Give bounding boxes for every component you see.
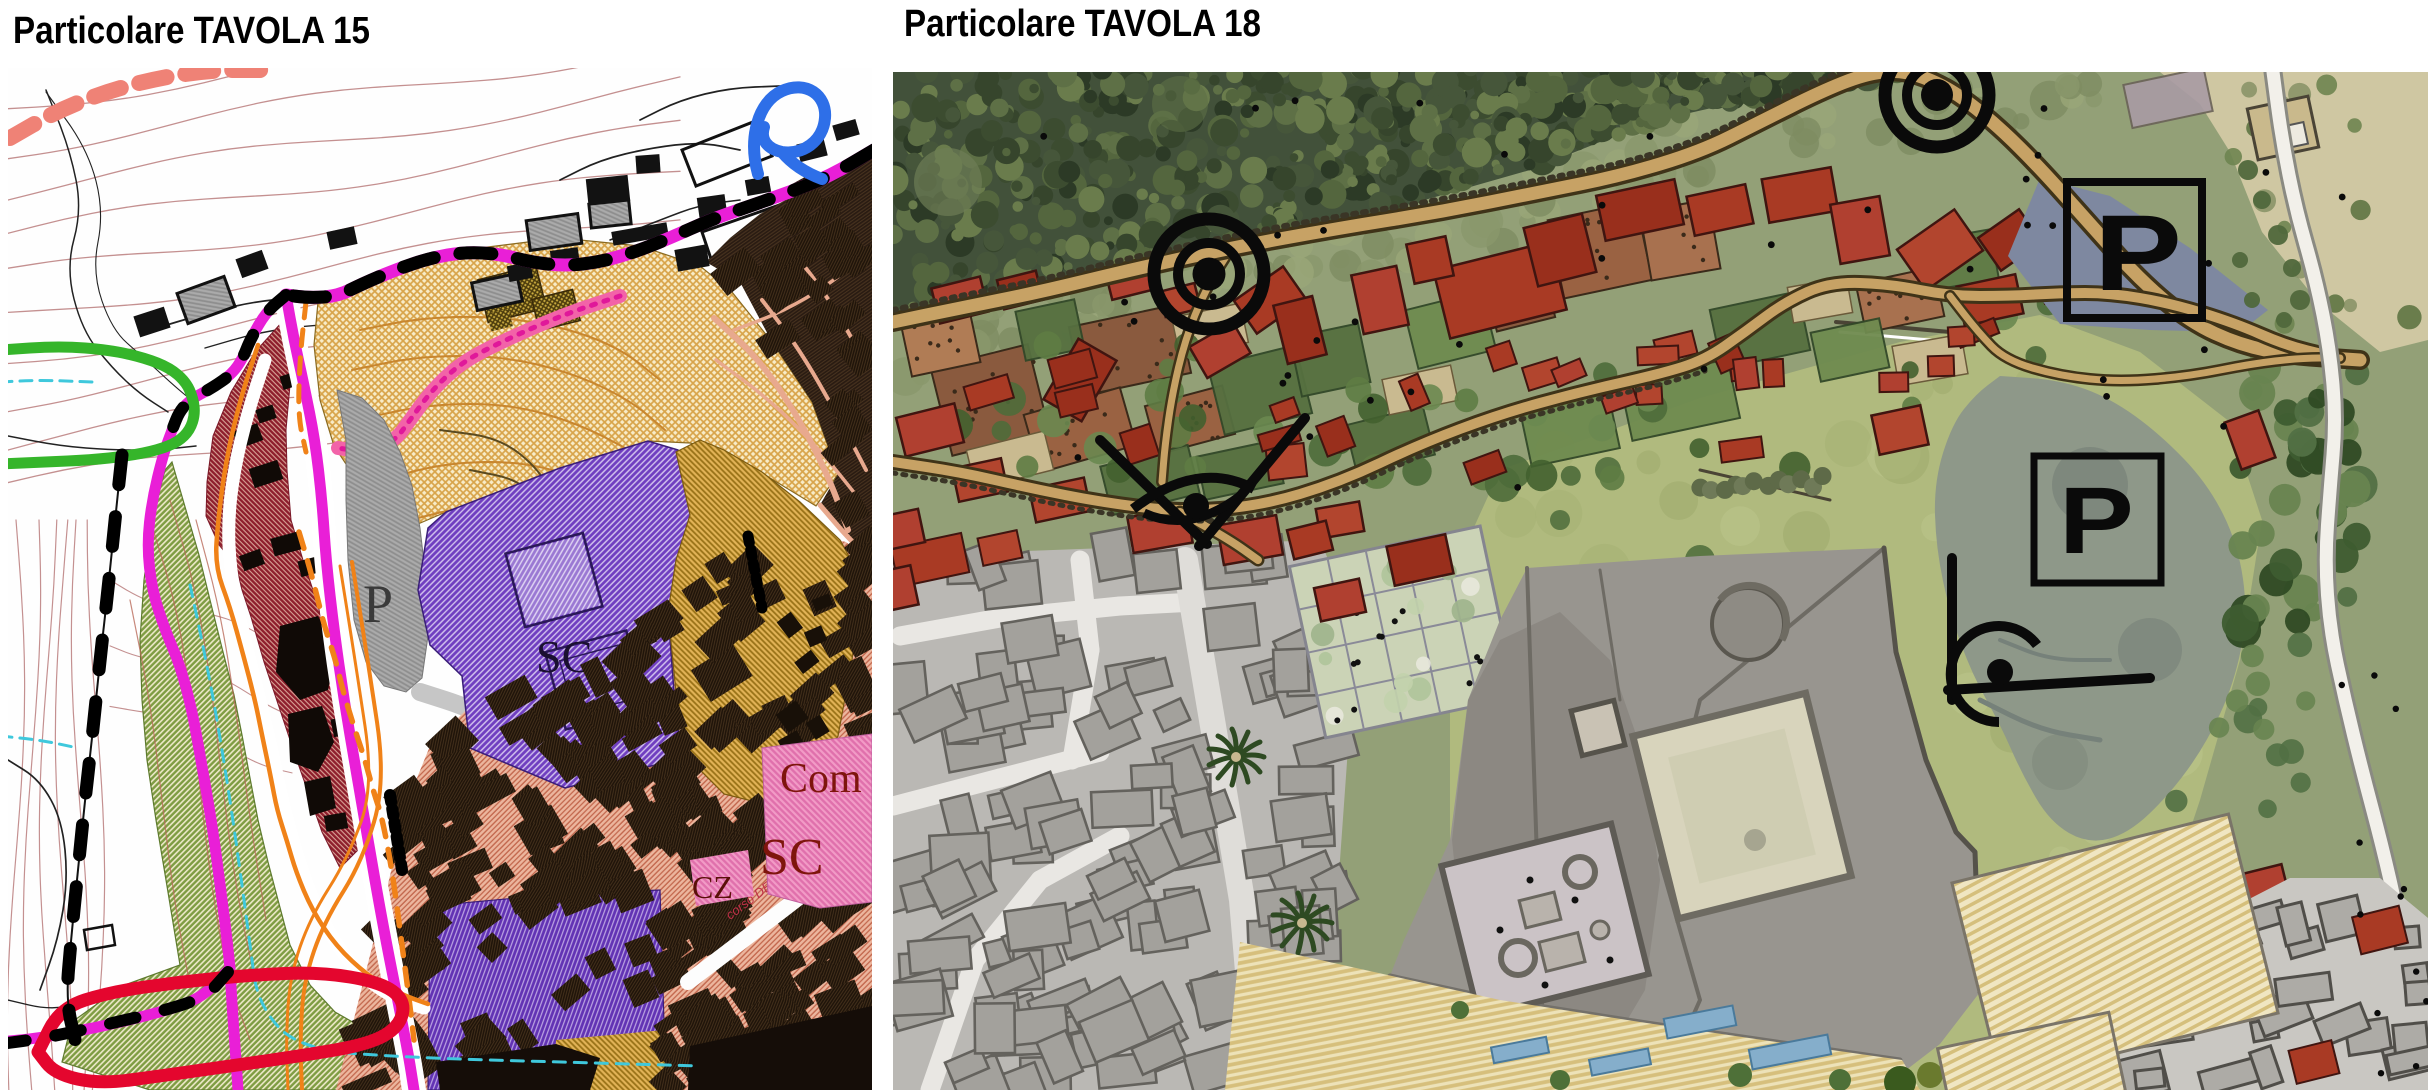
svg-text:Particolare TAVOLA 18: Particolare TAVOLA 18 [904, 3, 1261, 45]
svg-text:Com: Com [780, 756, 862, 802]
svg-text:P: P [2094, 192, 2182, 313]
svg-text:P: P [2059, 468, 2134, 574]
svg-text:P: P [363, 574, 393, 634]
svg-text:Particolare TAVOLA 15: Particolare TAVOLA 15 [13, 10, 370, 52]
svg-text:SC: SC [536, 631, 592, 682]
svg-text:CZ: CZ [692, 869, 733, 905]
svg-text:SC: SC [760, 829, 824, 886]
